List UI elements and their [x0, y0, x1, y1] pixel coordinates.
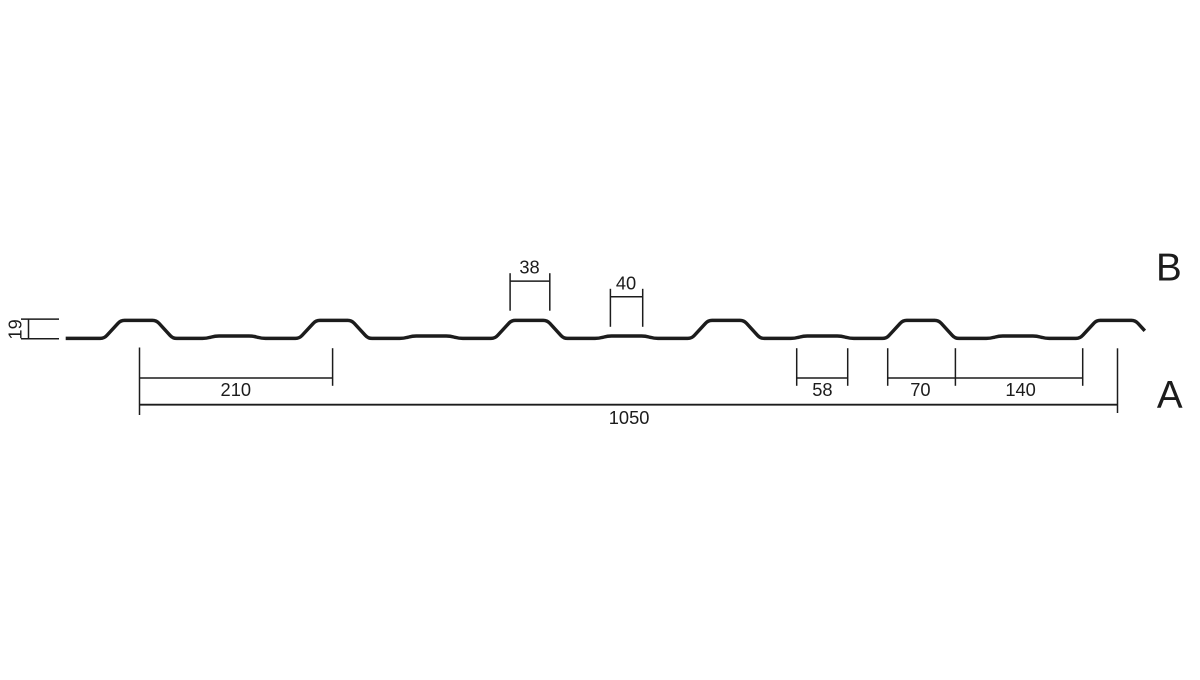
svg-text:58: 58	[812, 379, 832, 400]
svg-text:40: 40	[616, 273, 636, 294]
svg-text:19: 19	[4, 319, 25, 339]
svg-text:1050: 1050	[609, 407, 650, 428]
svg-text:A: A	[1157, 374, 1183, 417]
svg-text:210: 210	[221, 379, 252, 400]
svg-text:70: 70	[910, 379, 930, 400]
svg-text:140: 140	[1005, 379, 1036, 400]
svg-text:38: 38	[519, 257, 539, 278]
svg-text:B: B	[1156, 246, 1182, 289]
